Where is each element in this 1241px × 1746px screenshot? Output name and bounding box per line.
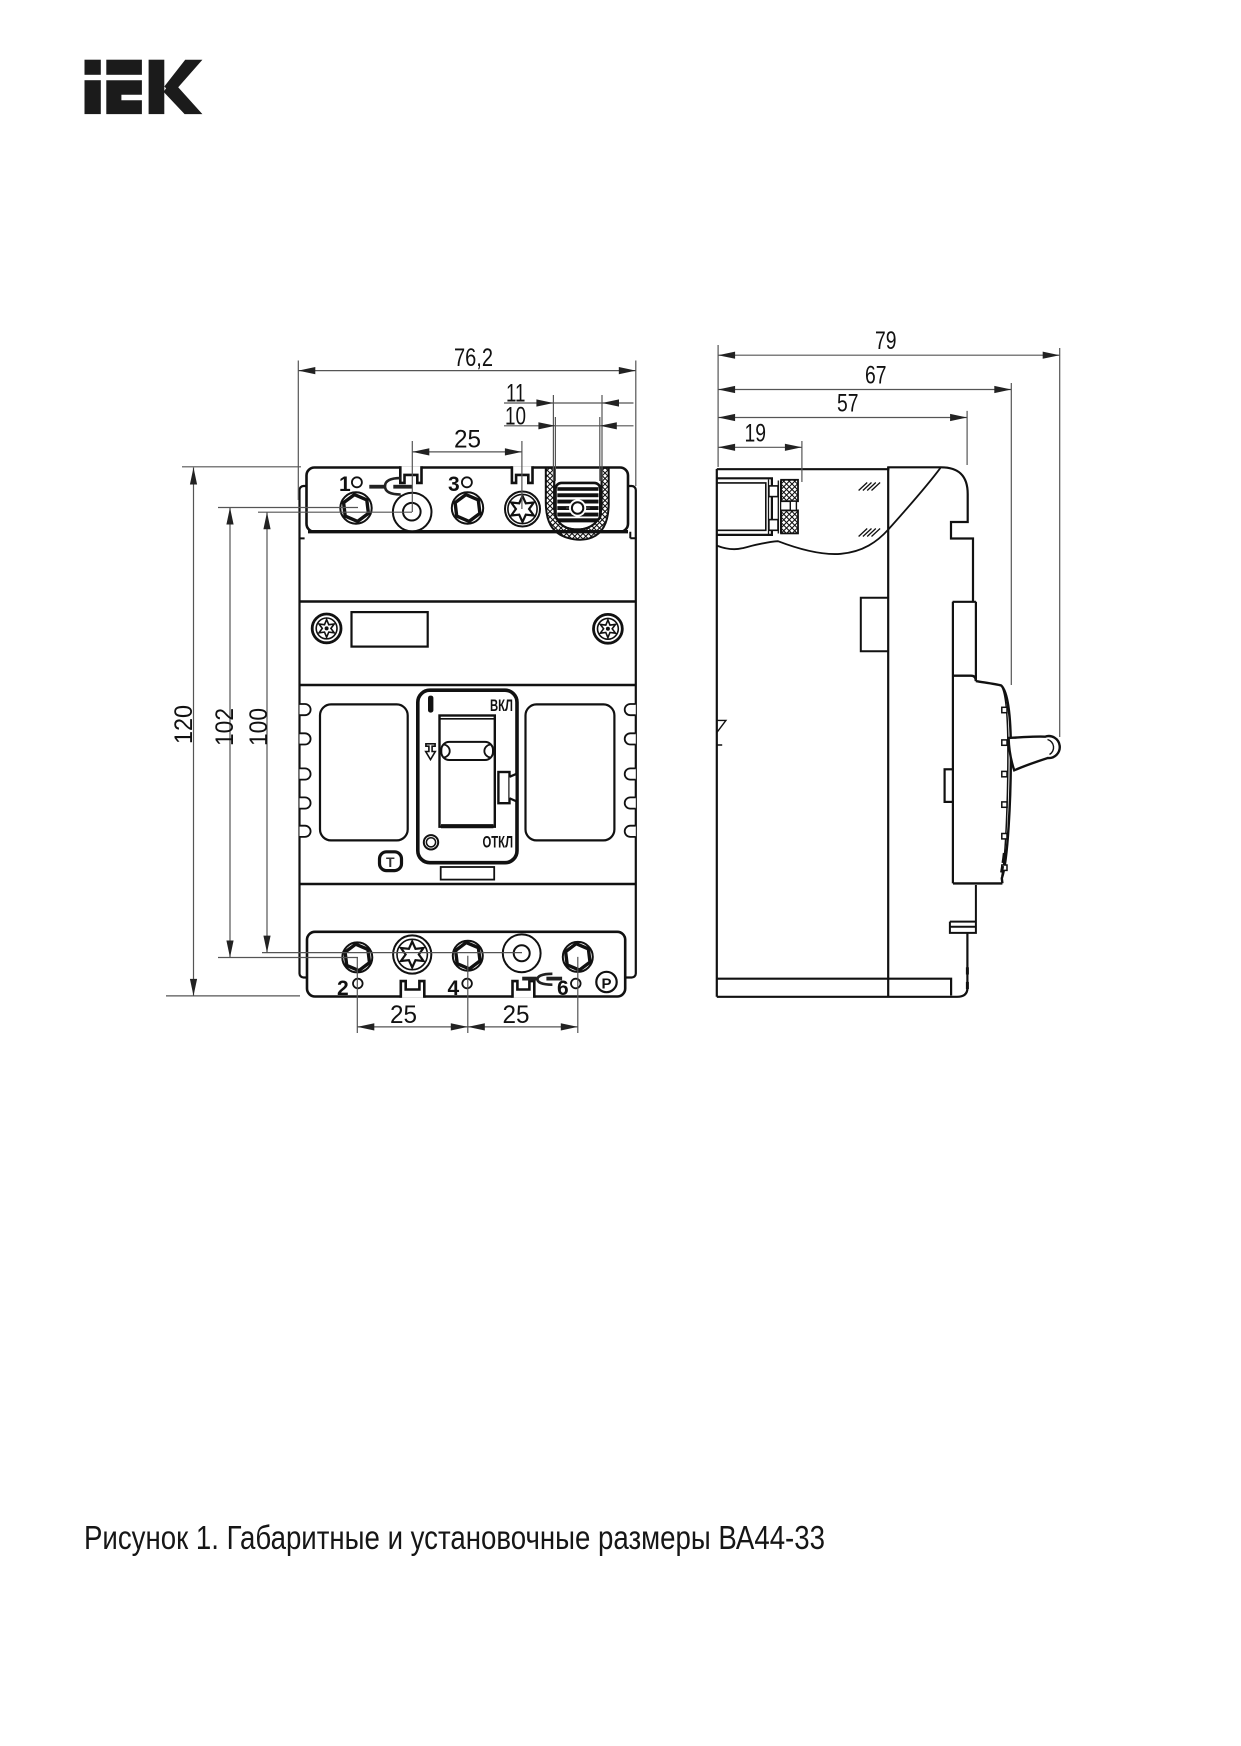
- svg-text:ОТКЛ: ОТКЛ: [483, 834, 514, 852]
- svg-text:100: 100: [245, 708, 273, 746]
- svg-text:1: 1: [339, 473, 351, 496]
- svg-text:Р: Р: [602, 976, 612, 993]
- svg-text:57: 57: [837, 390, 859, 418]
- svg-text:10: 10: [505, 403, 526, 431]
- svg-text:4: 4: [448, 977, 460, 1000]
- svg-text:25: 25: [390, 1001, 417, 1029]
- svg-text:2: 2: [337, 977, 349, 1000]
- svg-text:25: 25: [454, 426, 481, 454]
- svg-text:76,2: 76,2: [454, 344, 493, 372]
- svg-text:ВКЛ: ВКЛ: [490, 697, 513, 715]
- svg-text:3: 3: [448, 473, 460, 496]
- svg-text:79: 79: [875, 327, 897, 355]
- svg-text:Т: Т: [386, 854, 395, 870]
- svg-text:25: 25: [503, 1001, 530, 1029]
- svg-text:67: 67: [865, 362, 887, 390]
- svg-text:6: 6: [557, 977, 569, 1000]
- svg-text:19: 19: [745, 420, 767, 448]
- svg-text:Рисунок 1. Габаритные и устано: Рисунок 1. Габаритные и установочные раз…: [84, 1520, 825, 1557]
- svg-text:120: 120: [170, 705, 198, 744]
- svg-text:102: 102: [211, 708, 239, 746]
